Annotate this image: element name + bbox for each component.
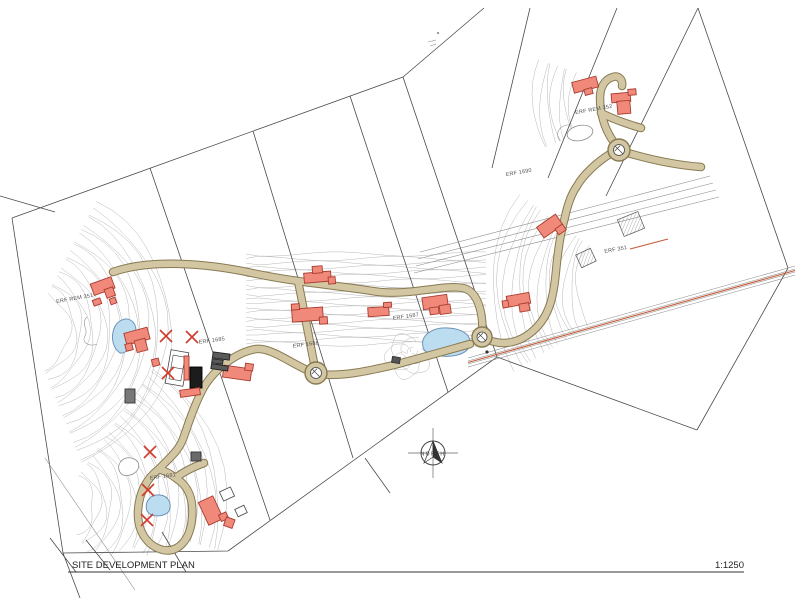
- contour-line: [246, 324, 486, 328]
- open-area-outline: [119, 458, 139, 476]
- contour-line: [540, 63, 549, 147]
- site-plan-canvas: ERF REM 351ERF 1685ERF 1686ERF 1687ERF 1…: [0, 0, 800, 600]
- building: [422, 294, 451, 317]
- roundabout: [305, 362, 327, 384]
- trellis: [617, 212, 644, 237]
- building: [367, 302, 392, 317]
- contour-line: [246, 252, 486, 256]
- parcel-boundaries: [0, 8, 788, 598]
- north-label: NORTH: [421, 452, 446, 458]
- building: [92, 298, 102, 306]
- building: [219, 487, 234, 501]
- building: [125, 389, 135, 403]
- plan-scale: 1:1250: [715, 560, 744, 571]
- contour-line: [246, 297, 486, 301]
- pond: [146, 495, 170, 516]
- contour-line: [547, 64, 555, 143]
- contour-line: [93, 456, 121, 551]
- contour-line: [532, 60, 545, 147]
- parcel-label: ERF 351: [604, 245, 628, 255]
- plan-title: SITE DEVELOPMENT PLAN: [72, 560, 195, 571]
- drawing-sheet: ERF REM 351ERF 1685ERF 1686ERF 1687ERF 1…: [0, 0, 800, 600]
- contour-line: [246, 261, 486, 265]
- parcel-boundary-layer: [0, 8, 795, 598]
- survey-dot: [437, 32, 439, 34]
- building: [184, 356, 189, 380]
- building: [190, 367, 202, 388]
- parcel-label: ERF REM 351: [56, 293, 94, 305]
- contour-line: [246, 265, 486, 269]
- building: [109, 297, 117, 305]
- parcel-label: ERF 1685: [198, 336, 225, 346]
- contour-line: [77, 476, 93, 535]
- building: [611, 89, 638, 115]
- north-arrow: NORTH: [408, 428, 458, 478]
- building: [392, 356, 401, 363]
- x-mark: [186, 331, 198, 343]
- contour-line: [82, 464, 107, 544]
- trellis: [576, 248, 596, 267]
- parcel-label: ERF 1690: [505, 168, 532, 178]
- survey-point: [485, 350, 488, 353]
- x-mark: [160, 330, 172, 342]
- x-mark: [141, 514, 153, 526]
- roundabout: [608, 139, 630, 161]
- roundabout: [472, 327, 492, 347]
- building: [191, 452, 201, 461]
- contour-line: [51, 275, 90, 387]
- building: [151, 358, 160, 367]
- contour-line: [115, 423, 159, 556]
- building: [501, 292, 532, 315]
- building: [235, 505, 247, 516]
- label-layer: ERF REM 351ERF 1685ERF 1686ERF 1687ERF 1…: [56, 104, 628, 482]
- contour-line: [246, 315, 486, 319]
- title-block: SITE DEVELOPMENT PLAN 1:1250: [68, 560, 744, 572]
- contour-line: [246, 270, 486, 274]
- building: [572, 76, 600, 98]
- contour-line: [246, 319, 486, 323]
- contour-line: [246, 256, 486, 260]
- water-layer: [113, 123, 595, 516]
